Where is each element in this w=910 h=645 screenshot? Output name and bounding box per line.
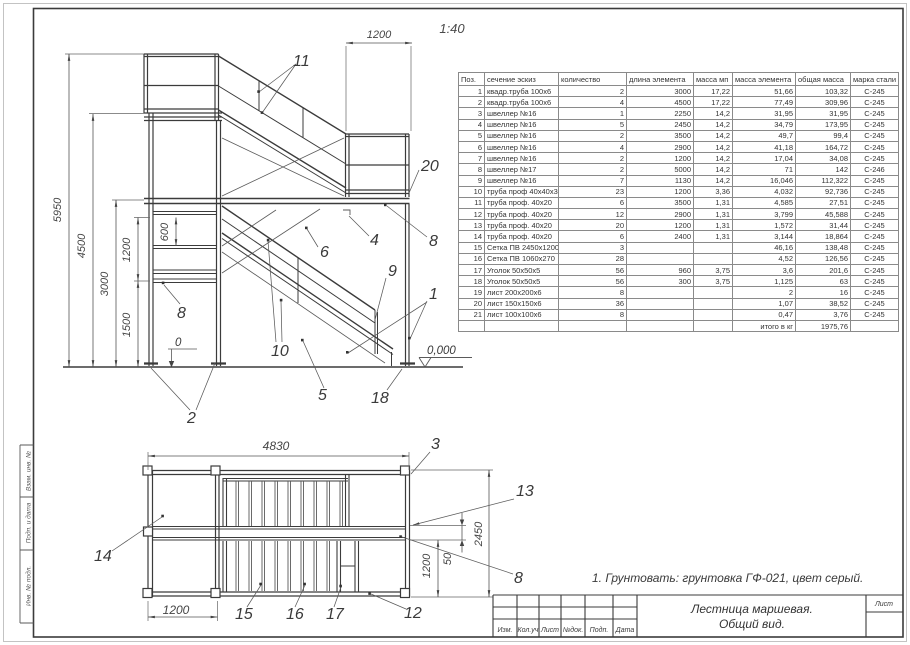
lower-flight-rails: [222, 219, 393, 366]
table-cell: С-245: [851, 108, 899, 119]
table-cell: 3500: [627, 197, 694, 208]
table-cell: [627, 287, 694, 298]
table-cell: 17: [459, 265, 485, 276]
table-cell: [694, 242, 733, 253]
dim-plan-stair: 1200: [421, 553, 433, 578]
table-header-cell: сечение эскиз: [485, 73, 559, 86]
tower-rails: [153, 212, 217, 283]
table-cell: 10: [459, 186, 485, 197]
table-cell: итого в кг: [733, 320, 796, 331]
table-cell: 3,36: [694, 186, 733, 197]
table-row: 13труба проф. 40х202012001,311,57231,44С…: [459, 220, 899, 231]
table-cell: 3000: [627, 86, 694, 97]
table-cell: 2: [559, 130, 627, 141]
table-cell: 92,736: [796, 186, 851, 197]
table-cell: 14,2: [694, 130, 733, 141]
table-cell: 2: [559, 86, 627, 97]
table-cell: 49,7: [733, 130, 796, 141]
callout-5: 5: [318, 387, 327, 404]
table-cell: 14,2: [694, 141, 733, 152]
table-cell: [694, 253, 733, 264]
table-cell: С-245: [851, 309, 899, 320]
table-cell: 300: [627, 276, 694, 287]
table-row: 6швеллер №164290014,241,18164,72С-245: [459, 141, 899, 152]
table-row: 14труба проф. 40х20624001,313,14418,864С…: [459, 231, 899, 242]
table-row: итого в кг1975,76: [459, 320, 899, 331]
plan-dimensions: 4830 1200 2450 1200 50: [148, 439, 493, 621]
dim-plan-bay: 1200: [163, 603, 190, 617]
table-cell: 2900: [627, 141, 694, 152]
table-row: 1квадр.труба 100х62300017,2251,66103,32С…: [459, 86, 899, 97]
callout-4: 4: [370, 232, 379, 249]
table-cell: 960: [627, 265, 694, 276]
table-header-row: Поз.сечение эскизколичестводлина элемент…: [459, 73, 899, 86]
table-cell: 4: [559, 97, 627, 108]
table-cell: 46,16: [733, 242, 796, 253]
table-row: 18Уголок 50х50х5563003,751,12563С-245: [459, 276, 899, 287]
table-row: 4швеллер №165245014,234,79173,95С-245: [459, 119, 899, 130]
table-cell: 17,04: [733, 153, 796, 164]
table-cell: [627, 298, 694, 309]
title-block: Изм. Кол.уч Лист №док. Подп. Дата Лестни…: [493, 595, 903, 637]
dim-plan-width: 4830: [263, 439, 290, 453]
table-cell: 5000: [627, 164, 694, 175]
table-cell: С-245: [851, 231, 899, 242]
table-cell: 23: [559, 186, 627, 197]
table-cell: швеллер №16: [485, 175, 559, 186]
table-row: 10труба проф 40х40х32312003,364,03292,73…: [459, 186, 899, 197]
table-cell: С-245: [851, 242, 899, 253]
callout-12: 12: [404, 605, 422, 622]
table-cell: 51,66: [733, 86, 796, 97]
table-cell: лист 200х200х6: [485, 287, 559, 298]
table-cell: 2: [559, 153, 627, 164]
table-cell: С-245: [851, 175, 899, 186]
parts-table-body: 1квадр.труба 100х62300017,2251,66103,32С…: [459, 86, 899, 332]
table-cell: 4: [559, 141, 627, 152]
table-header-cell: Поз.: [459, 73, 485, 86]
table-cell: 3,144: [733, 231, 796, 242]
table-header-cell: масса мп: [694, 73, 733, 86]
table-cell: [459, 320, 485, 331]
plan-lower-treads: [236, 541, 330, 591]
table-cell: швеллер №16: [485, 153, 559, 164]
table-cell: 8: [459, 164, 485, 175]
drawing-title-line1: Лестница маршевая.: [690, 602, 813, 616]
table-cell: 19: [459, 287, 485, 298]
table-cell: [694, 320, 733, 331]
table-cell: 9: [459, 175, 485, 186]
table-cell: 3,76: [796, 309, 851, 320]
table-cell: С-245: [851, 86, 899, 97]
table-cell: 1,31: [694, 220, 733, 231]
table-cell: 1,31: [694, 231, 733, 242]
callout-2: 2: [186, 410, 196, 427]
table-cell: 142: [796, 164, 851, 175]
table-cell: 2: [733, 287, 796, 298]
dim-landing-width: 1200: [367, 29, 392, 41]
table-cell: 17,22: [694, 86, 733, 97]
table-row: 9швеллер №167113014,216,046112,322С-245: [459, 175, 899, 186]
table-cell: 99,4: [796, 130, 851, 141]
table-cell: 6: [559, 197, 627, 208]
table-cell: 6: [459, 141, 485, 152]
table-cell: 31,95: [796, 108, 851, 119]
strip-label-vzam: Взам. инв. №: [26, 451, 33, 491]
table-cell: 41,18: [733, 141, 796, 152]
table-row: 8швеллер №172500014,271142С-246: [459, 164, 899, 175]
table-cell: 14,2: [694, 175, 733, 186]
dim-rail-600: 600: [159, 222, 171, 241]
stamp-col-izm: Изм.: [498, 627, 513, 634]
table-cell: швеллер №16: [485, 141, 559, 152]
strip-label-inv: Инв. № подл.: [25, 566, 33, 607]
table-row: 16Сетка ПВ 1060х270284,52126,56С-245: [459, 253, 899, 264]
table-header-cell: длина элемента: [627, 73, 694, 86]
paint-note: 1. Грунтовать: грунтовка ГФ-021, цвет се…: [592, 571, 863, 585]
table-cell: Сетка ПВ 1060х270: [485, 253, 559, 264]
table-cell: 45,588: [796, 209, 851, 220]
plan-mid-band: [153, 527, 405, 541]
table-cell: 2450: [627, 119, 694, 130]
level-zero-label: 0: [175, 337, 182, 349]
plan-posts: [143, 466, 410, 598]
table-row: 2квадр.труба 100х64450017,2277,49309,96С…: [459, 97, 899, 108]
table-cell: труба проф. 40х20: [485, 220, 559, 231]
table-cell: швеллер №16: [485, 119, 559, 130]
table-cell: 138,48: [796, 242, 851, 253]
table-cell: 20: [559, 220, 627, 231]
plan-upper-treads: [236, 481, 343, 526]
table-cell: 18: [459, 276, 485, 287]
table-cell: 12: [459, 209, 485, 220]
table-cell: 103,32: [796, 86, 851, 97]
stamp-col-data: Дата: [615, 627, 635, 634]
table-cell: 18,864: [796, 231, 851, 242]
callout-15: 15: [235, 606, 253, 623]
lower-flight-far-stringer: [222, 252, 385, 363]
table-cell: 16: [459, 253, 485, 264]
table-cell: 1,31: [694, 209, 733, 220]
table-row: 5швеллер №162350014,249,799,4С-245: [459, 130, 899, 141]
table-cell: труба проф. 40х20: [485, 231, 559, 242]
table-cell: 34,08: [796, 153, 851, 164]
table-cell: 56: [559, 265, 627, 276]
table-cell: С-246: [851, 164, 899, 175]
table-cell: С-245: [851, 298, 899, 309]
table-cell: 17,22: [694, 97, 733, 108]
table-cell: 34,79: [733, 119, 796, 130]
table-header-cell: марка стали: [851, 73, 899, 86]
table-cell: [627, 320, 694, 331]
table-cell: 4500: [627, 97, 694, 108]
table-cell: Сетка ПВ 2450х1200: [485, 242, 559, 253]
table-row: 11труба проф. 40х20635001,314,58527,51С-…: [459, 197, 899, 208]
table-cell: 14: [459, 231, 485, 242]
table-cell: С-245: [851, 97, 899, 108]
table-cell: 6: [559, 231, 627, 242]
stamp-col-list: Лист: [540, 627, 559, 634]
table-cell: Уголок 50х50х5: [485, 265, 559, 276]
table-cell: 1,572: [733, 220, 796, 231]
table-row: 3швеллер №161225014,231,9531,95С-245: [459, 108, 899, 119]
right-column: [406, 204, 410, 366]
table-cell: 2900: [627, 209, 694, 220]
callout-20: 20: [420, 158, 439, 175]
table-cell: 1,125: [733, 276, 796, 287]
table-cell: квадр.труба 100х6: [485, 86, 559, 97]
mid-floor-beam: [144, 199, 410, 204]
table-cell: 31,44: [796, 220, 851, 231]
table-cell: С-245: [851, 130, 899, 141]
table-cell: 3: [559, 242, 627, 253]
table-row: 17Уголок 50х50х5569603,753,6201,6С-245: [459, 265, 899, 276]
table-cell: 13: [459, 220, 485, 231]
table-cell: 1200: [627, 220, 694, 231]
table-cell: 12: [559, 209, 627, 220]
plan-frame: [148, 470, 410, 597]
table-cell: [694, 287, 733, 298]
table-cell: 3,799: [733, 209, 796, 220]
table-cell: С-245: [851, 265, 899, 276]
table-cell: квадр.труба 100х6: [485, 97, 559, 108]
table-cell: 3,75: [694, 276, 733, 287]
dim-rail-1200: 1200: [121, 237, 133, 262]
landing: [346, 134, 410, 197]
table-cell: С-245: [851, 276, 899, 287]
callout-1: 1: [429, 286, 438, 303]
table-cell: 14,2: [694, 164, 733, 175]
table-cell: швеллер №16: [485, 130, 559, 141]
dim-plan-depth: 2450: [473, 521, 485, 547]
table-cell: 71: [733, 164, 796, 175]
table-cell: 28: [559, 253, 627, 264]
table-row: 19лист 200х200х68216С-245: [459, 287, 899, 298]
table-cell: 15: [459, 242, 485, 253]
table-cell: 4,52: [733, 253, 796, 264]
callout-11: 11: [293, 53, 310, 70]
dim-mid-height: 3000: [99, 271, 111, 296]
level-datum-label: 0,000: [427, 345, 456, 357]
callout-13: 13: [516, 483, 534, 500]
dim-lower-height: 1500: [121, 312, 133, 337]
table-cell: [694, 298, 733, 309]
table-cell: 16,046: [733, 175, 796, 186]
table-cell: 14,2: [694, 153, 733, 164]
table-cell: С-245: [851, 209, 899, 220]
table-cell: лист 150х150х6: [485, 298, 559, 309]
table-cell: 38,52: [796, 298, 851, 309]
upper-braces: [222, 138, 344, 196]
table-cell: 1975,76: [796, 320, 851, 331]
stamp-col-koluch: Кол.уч: [518, 627, 539, 634]
table-cell: 1,07: [733, 298, 796, 309]
table-cell: 20: [459, 298, 485, 309]
table-cell: труба проф 40х40х3: [485, 186, 559, 197]
table-cell: 2400: [627, 231, 694, 242]
table-cell: 126,56: [796, 253, 851, 264]
table-cell: 164,72: [796, 141, 851, 152]
table-cell: 1: [559, 108, 627, 119]
callout-10: 10: [271, 343, 289, 360]
table-cell: 1200: [627, 186, 694, 197]
table-cell: 4: [459, 119, 485, 130]
callout-14: 14: [94, 548, 112, 565]
table-header-cell: количество: [559, 73, 627, 86]
callout-dots: [162, 90, 411, 353]
table-cell: швеллер №16: [485, 108, 559, 119]
callout-6: 6: [320, 244, 329, 261]
table-header-cell: масса элемента: [733, 73, 796, 86]
table-cell: [694, 309, 733, 320]
table-cell: 3,6: [733, 265, 796, 276]
table-cell: лист 100х100х6: [485, 309, 559, 320]
table-cell: 5: [559, 119, 627, 130]
table-cell: 16: [796, 287, 851, 298]
upper-flight-stringers: [219, 56, 347, 188]
table-cell: труба проф. 40х20: [485, 209, 559, 220]
table-cell: 1200: [627, 153, 694, 164]
table-cell: 11: [459, 197, 485, 208]
callout-17: 17: [326, 606, 345, 623]
drawing-sheet: Взам. инв. № Подп. и дата Инв. № подл.: [0, 0, 910, 645]
table-cell: [627, 253, 694, 264]
table-cell: 56: [559, 276, 627, 287]
callout-8-left: 8: [177, 305, 186, 322]
drawing-title-line2: Общий вид.: [719, 617, 785, 631]
dim-total-height: 5950: [52, 197, 64, 222]
callout-18: 18: [371, 390, 389, 407]
table-cell: [627, 309, 694, 320]
stamp-col-ndok: №док.: [563, 626, 584, 634]
table-cell: 1130: [627, 175, 694, 186]
table-cell: С-245: [851, 141, 899, 152]
table-cell: 3,75: [694, 265, 733, 276]
table-cell: С-245: [851, 220, 899, 231]
table-header-cell: общая масса: [796, 73, 851, 86]
table-cell: 4,032: [733, 186, 796, 197]
dim-platform-height: 4500: [76, 233, 88, 258]
table-cell: швеллер №17: [485, 164, 559, 175]
table-cell: 2: [459, 97, 485, 108]
table-cell: 63: [796, 276, 851, 287]
table-row: 20лист 150х150х6361,0738,52С-245: [459, 298, 899, 309]
callout-3: 3: [431, 436, 440, 453]
table-cell: 7: [459, 153, 485, 164]
table-cell: 3500: [627, 130, 694, 141]
table-cell: 7: [559, 175, 627, 186]
strip-label-podp: Подп. и дата: [25, 502, 33, 543]
table-cell: труба проф. 40х20: [485, 197, 559, 208]
table-cell: 4,585: [733, 197, 796, 208]
table-cell: 14,2: [694, 108, 733, 119]
beam-bracket: [343, 210, 350, 215]
table-cell: 2250: [627, 108, 694, 119]
table-cell: [485, 320, 559, 331]
table-cell: С-245: [851, 153, 899, 164]
callout-8-right: 8: [429, 233, 438, 250]
table-cell: 8: [559, 309, 627, 320]
table-cell: 3: [459, 108, 485, 119]
table-cell: 173,95: [796, 119, 851, 130]
table-row: 21лист 100х100х680,473,76С-245: [459, 309, 899, 320]
side-strip: Взам. инв. № Подп. и дата Инв. № подл.: [25, 451, 33, 606]
parts-table: Поз.сечение эскизколичестводлина элемент…: [458, 72, 899, 332]
table-row: 15Сетка ПВ 2450х1200346,16138,48С-245: [459, 242, 899, 253]
table-cell: 27,51: [796, 197, 851, 208]
table-row: 12труба проф. 40х201229001,313,79945,588…: [459, 209, 899, 220]
callout-8-plan: 8: [514, 570, 523, 587]
table-cell: С-245: [851, 186, 899, 197]
table-cell: 0,47: [733, 309, 796, 320]
scale-note: 1:40: [439, 21, 465, 36]
table-cell: [851, 320, 899, 331]
table-cell: 8: [559, 287, 627, 298]
table-cell: 2: [559, 164, 627, 175]
table-cell: 309,96: [796, 97, 851, 108]
plan-upper-band: [223, 475, 349, 527]
table-cell: С-245: [851, 253, 899, 264]
table-cell: [559, 320, 627, 331]
stamp-col-podp: Подп.: [590, 626, 609, 634]
parts-table-head: Поз.сечение эскизколичестводлина элемент…: [459, 73, 899, 86]
table-cell: 201,6: [796, 265, 851, 276]
table-cell: 14,2: [694, 119, 733, 130]
callout-16: 16: [286, 606, 304, 623]
table-cell: С-245: [851, 287, 899, 298]
table-cell: 31,95: [733, 108, 796, 119]
table-cell: С-245: [851, 197, 899, 208]
table-cell: Уголок 50х50х5: [485, 276, 559, 287]
table-cell: 77,49: [733, 97, 796, 108]
table-cell: 1,31: [694, 197, 733, 208]
table-cell: 21: [459, 309, 485, 320]
top-platform: [144, 54, 222, 121]
table-cell: С-245: [851, 119, 899, 130]
callout-9: 9: [388, 263, 397, 280]
table-cell: 36: [559, 298, 627, 309]
table-cell: 5: [459, 130, 485, 141]
table-row: 7швеллер №162120014,217,0434,08С-245: [459, 153, 899, 164]
table-cell: 112,322: [796, 175, 851, 186]
sheet-cell-label: Лист: [874, 601, 893, 608]
table-cell: [627, 242, 694, 253]
plan-view: [143, 466, 466, 598]
table-cell: 1: [459, 86, 485, 97]
